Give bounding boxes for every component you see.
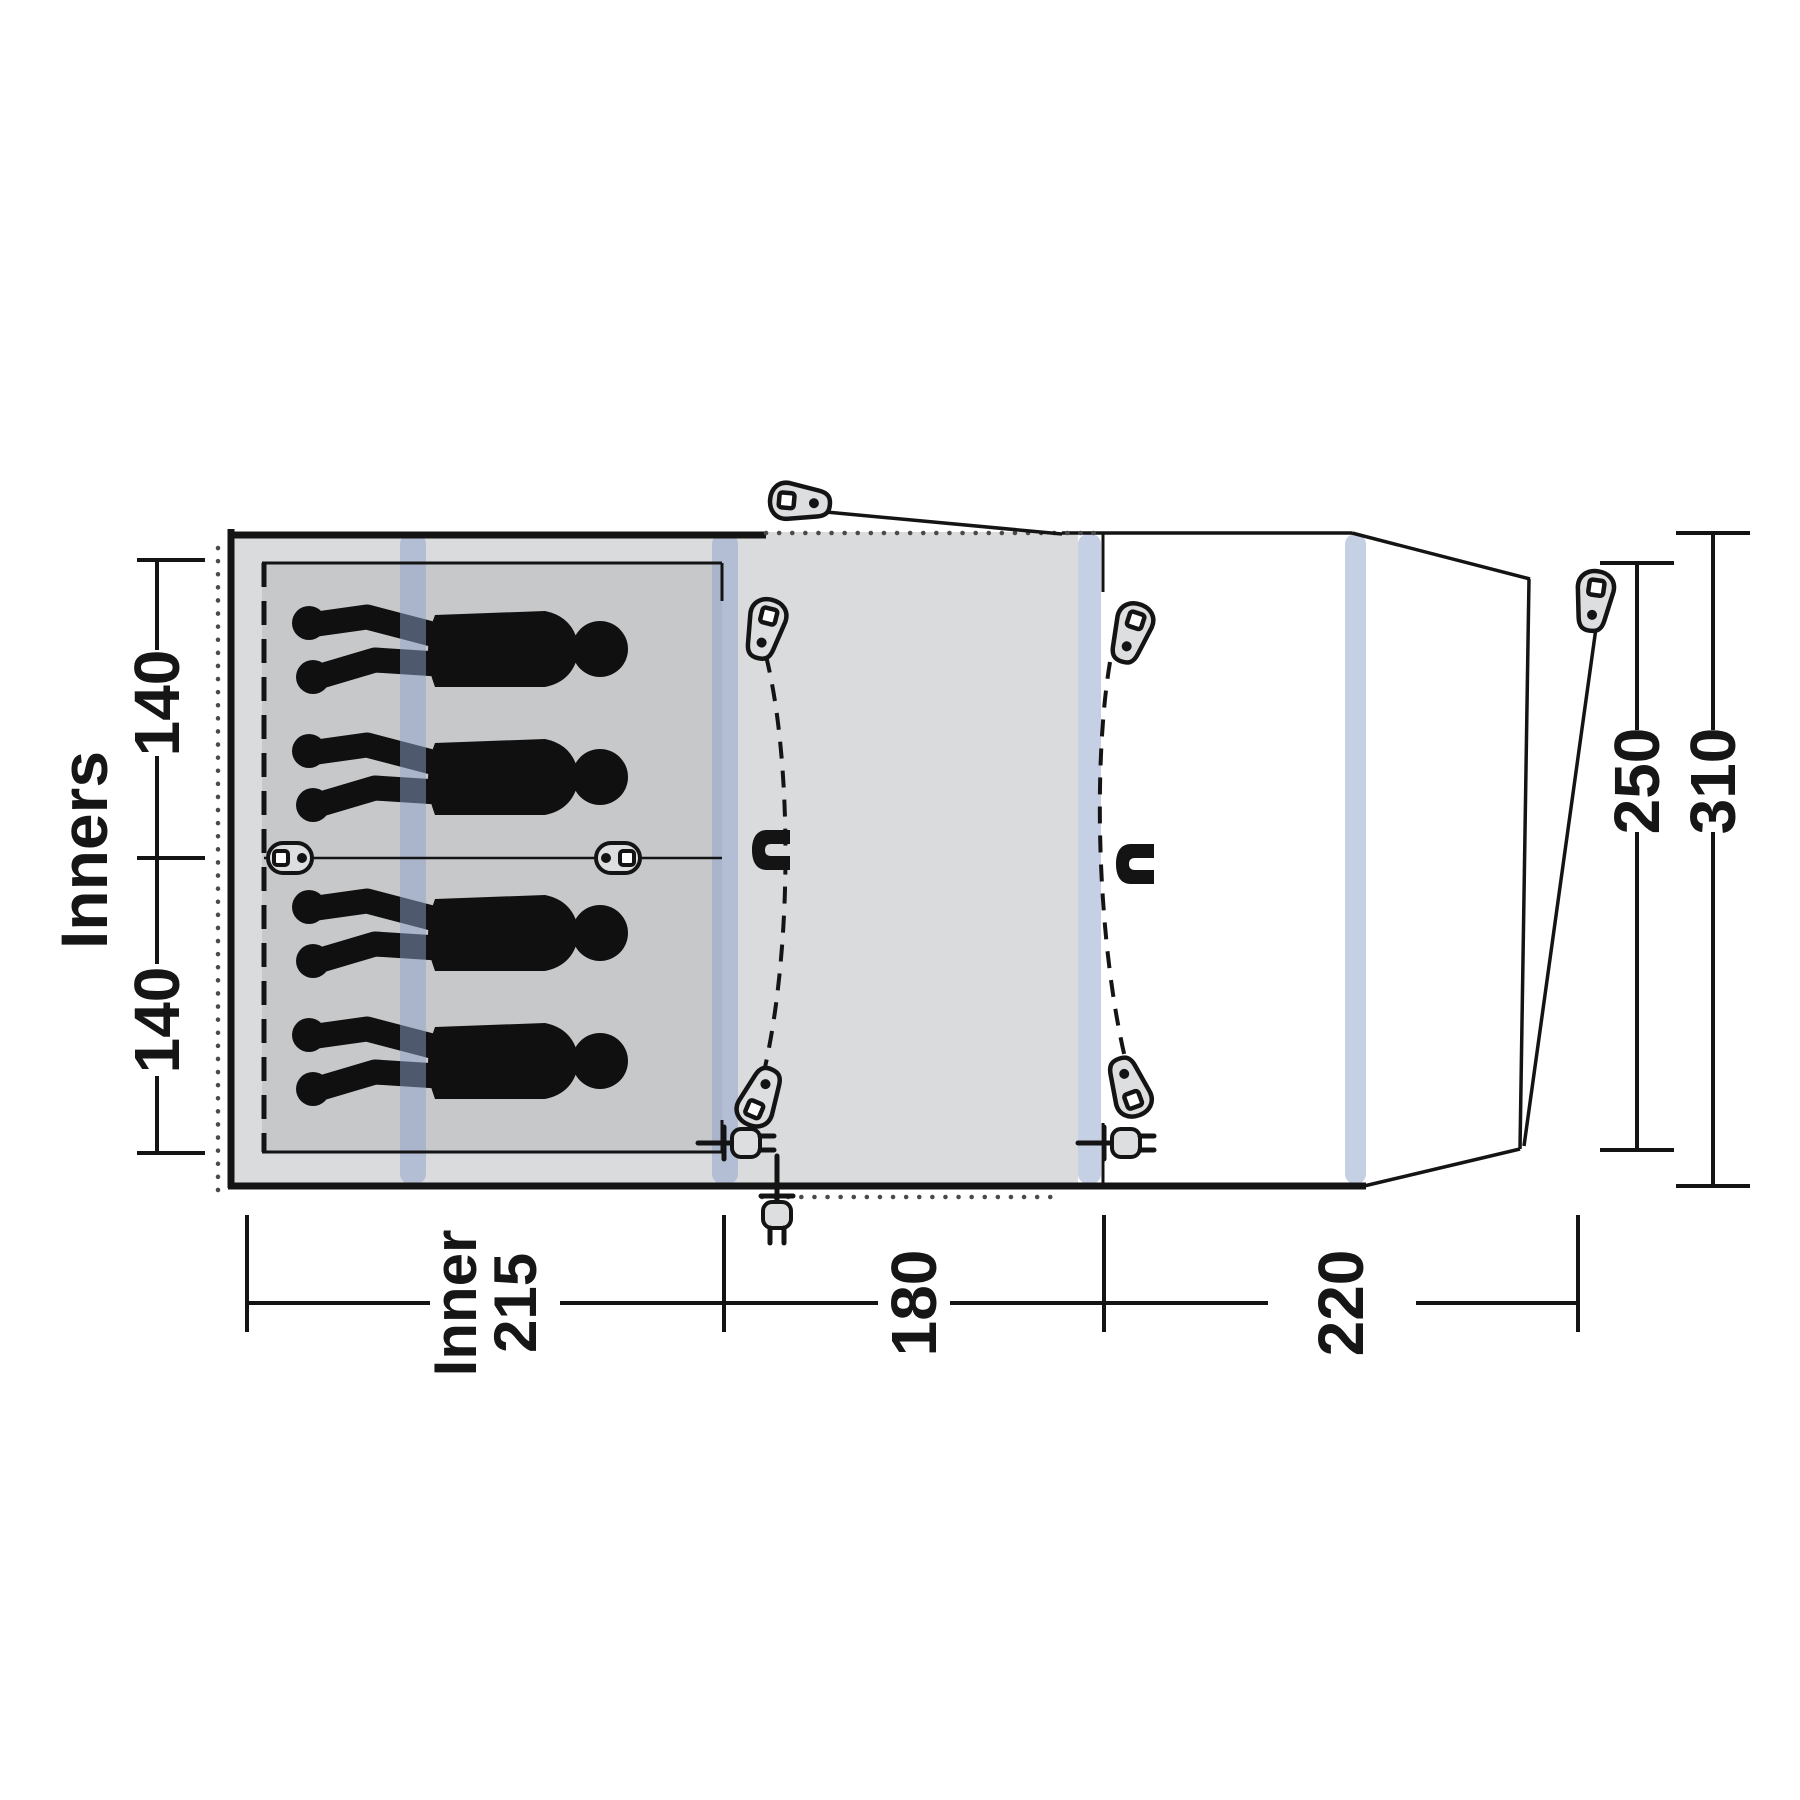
dim-porch-depth: 220 xyxy=(1305,1250,1377,1357)
roof-guy-line xyxy=(826,512,1062,534)
zipper-pull-icon xyxy=(1572,569,1616,633)
pole-stripe-3 xyxy=(1078,534,1101,1184)
dim-left: 140 140 Inners xyxy=(47,560,205,1153)
magnet-tieback-icon xyxy=(1116,844,1154,884)
zipper-pull-icon xyxy=(769,481,832,522)
front-guy-line xyxy=(1524,628,1596,1146)
dim-bottom: Inner 215 180 220 xyxy=(247,1215,1578,1376)
dim-inner-value: 215 xyxy=(482,1253,549,1353)
inners-title: Inners xyxy=(47,751,121,949)
dim-right: 250 310 xyxy=(1600,533,1750,1186)
dim-total-width: 310 xyxy=(1677,728,1749,835)
zipper-pull-icon xyxy=(1105,599,1158,667)
zipper-pull-icon xyxy=(1102,1053,1157,1122)
dim-living-depth: 180 xyxy=(878,1250,950,1357)
tent-floorplan: 140 140 Inners Inner 215 180 220 250 310 xyxy=(0,0,1800,1800)
dim-front-height: 250 xyxy=(1601,728,1673,835)
dim-inner-depth: Inner 215 xyxy=(422,1230,549,1377)
dim-inner-word: Inner xyxy=(422,1230,489,1377)
dim-bed-bottom: 140 xyxy=(121,967,193,1074)
cord-toggle-icon xyxy=(596,843,640,873)
pole-stripe-4 xyxy=(1345,534,1366,1184)
dim-bed-top: 140 xyxy=(121,650,193,757)
cord-toggle-icon xyxy=(268,843,312,873)
